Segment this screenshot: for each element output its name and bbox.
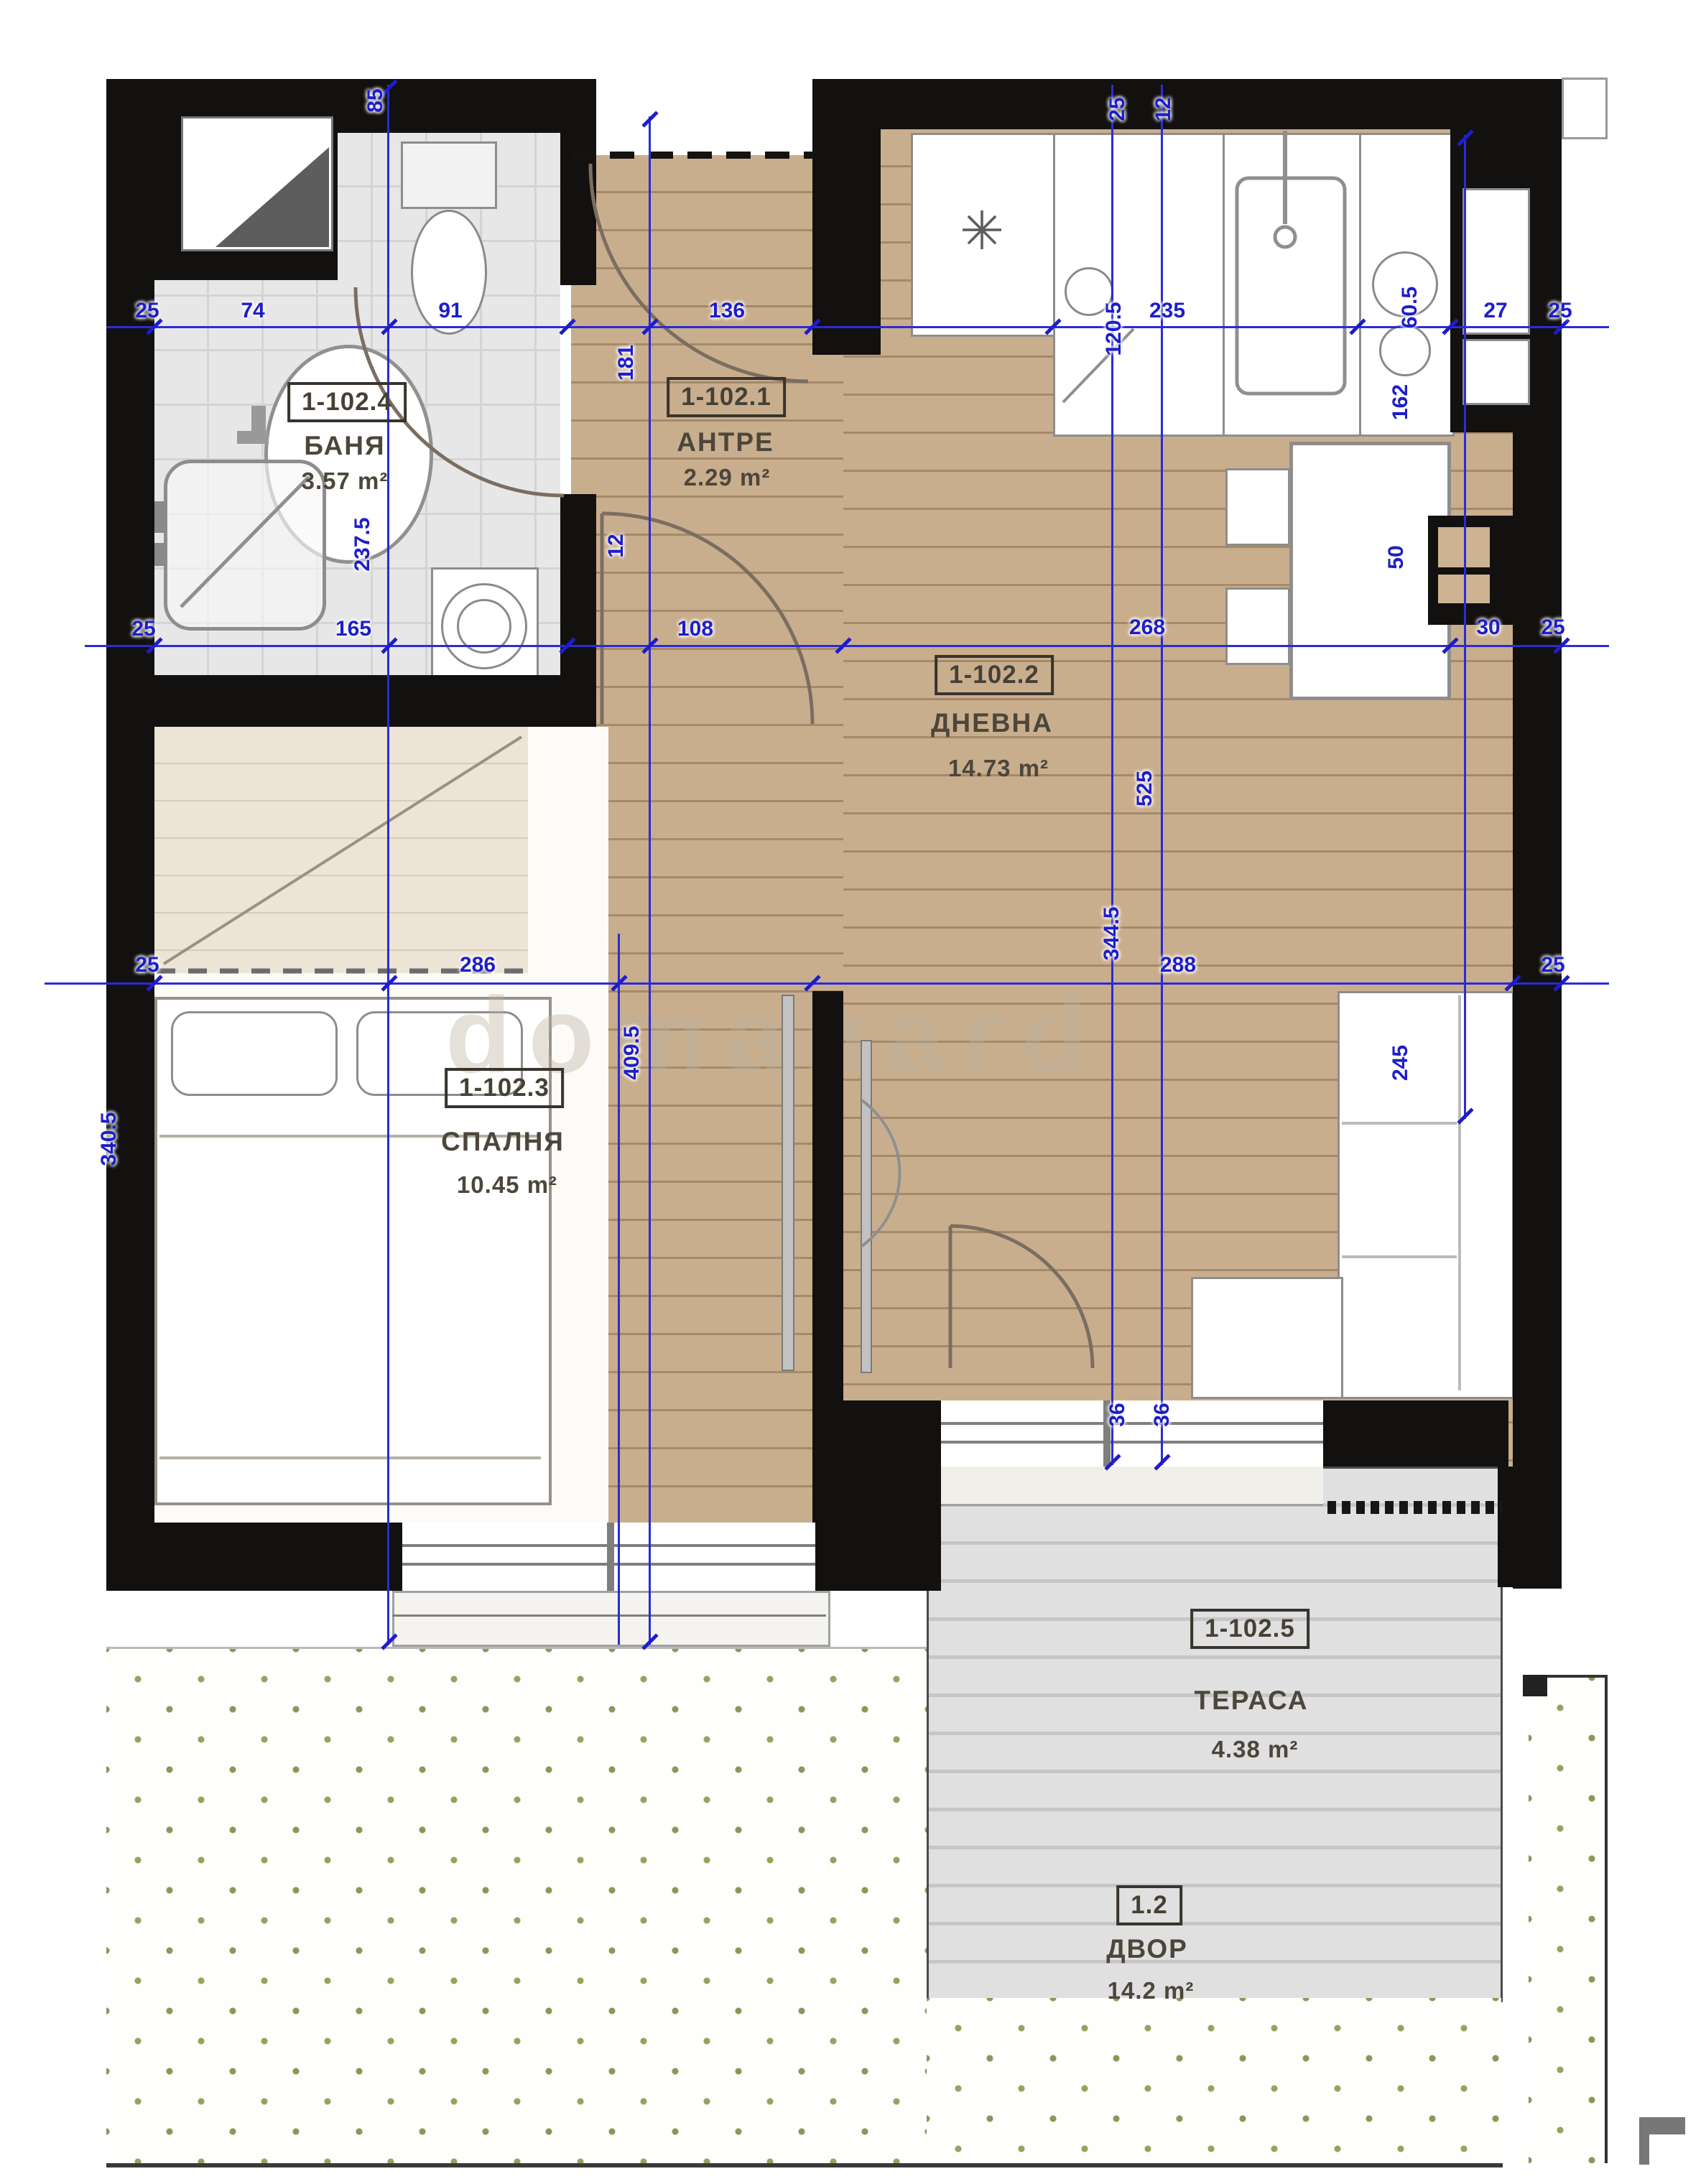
- sink-basin: [1237, 178, 1345, 394]
- room-area-bath: 3.57 m²: [302, 468, 389, 495]
- room-area-terrace: 4.38 m²: [1212, 1736, 1299, 1763]
- room-tag-yard: 1.2: [1116, 1885, 1182, 1925]
- dim-label: 165: [335, 617, 371, 641]
- dim-label: 525: [1133, 771, 1157, 807]
- dim-label: 181: [614, 345, 639, 381]
- dim-label: 344.5: [1100, 906, 1124, 960]
- dim-line-v-liv2: [1161, 85, 1163, 1465]
- wardrobe-rail-line: [164, 737, 521, 964]
- dim-line-row2: [85, 645, 1609, 647]
- room-name-antre: АНТРЕ: [677, 427, 774, 457]
- dim-label: 36: [1105, 1403, 1130, 1426]
- dim-label: 12: [1151, 97, 1176, 121]
- dim-label: 12: [604, 534, 629, 557]
- room-tag-living: 1-102.2: [935, 655, 1054, 695]
- room-area-living: 14.73 m²: [948, 755, 1049, 782]
- shower-glass-line: [181, 477, 309, 607]
- sliding-door-bulge: [862, 1100, 900, 1246]
- dim-label: 286: [460, 953, 496, 977]
- dim-label: 409.5: [620, 1026, 644, 1079]
- dim-label: 50: [1384, 545, 1409, 569]
- room-area-bedroom: 10.45 m²: [457, 1171, 557, 1199]
- dim-label: 288: [1160, 953, 1196, 977]
- room-name-bath: БАНЯ: [304, 431, 385, 461]
- room-tag-terrace: 1-102.5: [1190, 1609, 1309, 1649]
- dim-label: 237.5: [351, 517, 375, 571]
- dim-label: 25: [135, 299, 159, 323]
- dim-label: 25: [1541, 953, 1564, 977]
- dim-label: 91: [438, 299, 462, 323]
- dim-line-row1: [106, 326, 1609, 328]
- dim-label: 268: [1129, 615, 1165, 640]
- dim-line-v-right: [1464, 135, 1466, 1119]
- dim-label: 30: [1476, 615, 1500, 640]
- dim-label: 27: [1483, 299, 1507, 323]
- room-area-yard: 14.2 m²: [1108, 1977, 1195, 2004]
- room-name-terrace: ТЕРАСА: [1194, 1686, 1308, 1716]
- sink-faucet-knob: [1275, 227, 1295, 247]
- dim-label: 60.5: [1398, 287, 1422, 328]
- dim-label: 25: [131, 617, 155, 641]
- dim-label: 25: [1105, 97, 1130, 121]
- dim-label: 340.5: [97, 1112, 121, 1166]
- terrace-door-arc: [950, 1226, 1093, 1368]
- dim-line-row3: [45, 982, 1609, 985]
- dim-line-v-bath: [387, 85, 389, 1645]
- dim-label: 235: [1149, 299, 1185, 323]
- floor-plan: ✳: [0, 0, 1706, 2184]
- dim-label: 245: [1389, 1045, 1413, 1081]
- room-tag-antre: 1-102.1: [667, 377, 786, 417]
- room-name-bedroom: СПАЛНЯ: [441, 1127, 565, 1157]
- dim-line-v-hall: [649, 116, 651, 1645]
- dim-label: 85: [363, 88, 388, 112]
- dim-label: 36: [1150, 1403, 1174, 1426]
- dim-label: 25: [1548, 299, 1572, 323]
- dim-label: 136: [709, 299, 745, 323]
- room-area-antre: 2.29 m²: [684, 464, 771, 491]
- room-tag-bedroom: 1-102.3: [445, 1068, 564, 1108]
- room-name-living: ДНЕВНА: [931, 708, 1053, 738]
- dim-label: 108: [677, 617, 713, 641]
- dim-label: 25: [135, 953, 159, 977]
- dim-label: 162: [1389, 384, 1413, 420]
- dim-line-v-liv1: [1111, 85, 1113, 1465]
- dim-label: 120.5: [1102, 302, 1126, 356]
- dim-label: 25: [1541, 615, 1564, 640]
- dim-label: 74: [241, 299, 264, 323]
- room-name-yard: ДВОР: [1106, 1934, 1188, 1964]
- room-tag-bath: 1-102.4: [287, 382, 407, 422]
